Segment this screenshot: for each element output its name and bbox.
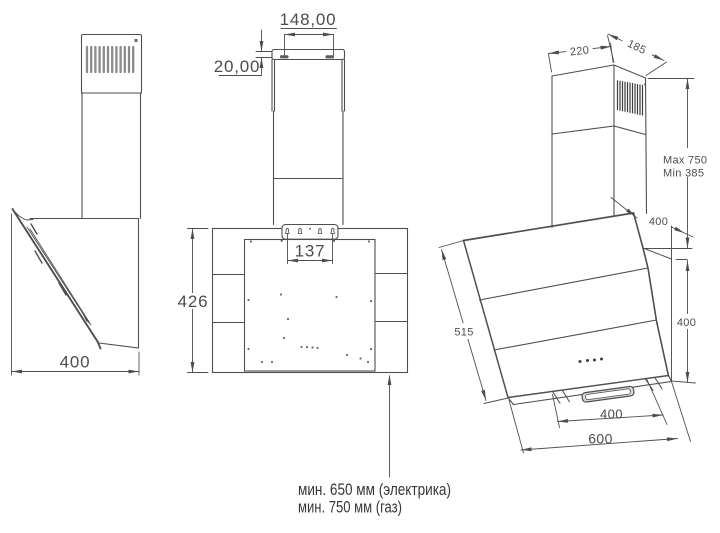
svg-text:600: 600 [588,431,613,447]
svg-text:426: 426 [178,292,209,311]
svg-text:мин. 750 мм (газ): мин. 750 мм (газ) [298,499,402,517]
svg-text:400: 400 [60,353,91,372]
svg-text:148,00: 148,00 [280,10,337,29]
svg-text:Min 385: Min 385 [663,168,704,180]
svg-text:515: 515 [454,327,473,339]
svg-text:400: 400 [600,407,623,422]
svg-text:20,00: 20,00 [214,57,261,76]
svg-text:137: 137 [295,242,326,261]
svg-text:мин. 650 мм (электрика): мин. 650 мм (электрика) [298,481,451,499]
svg-text:Max 750: Max 750 [663,155,707,167]
svg-text:220: 220 [569,44,589,58]
svg-text:400: 400 [649,216,668,228]
svg-text:400: 400 [677,317,696,329]
